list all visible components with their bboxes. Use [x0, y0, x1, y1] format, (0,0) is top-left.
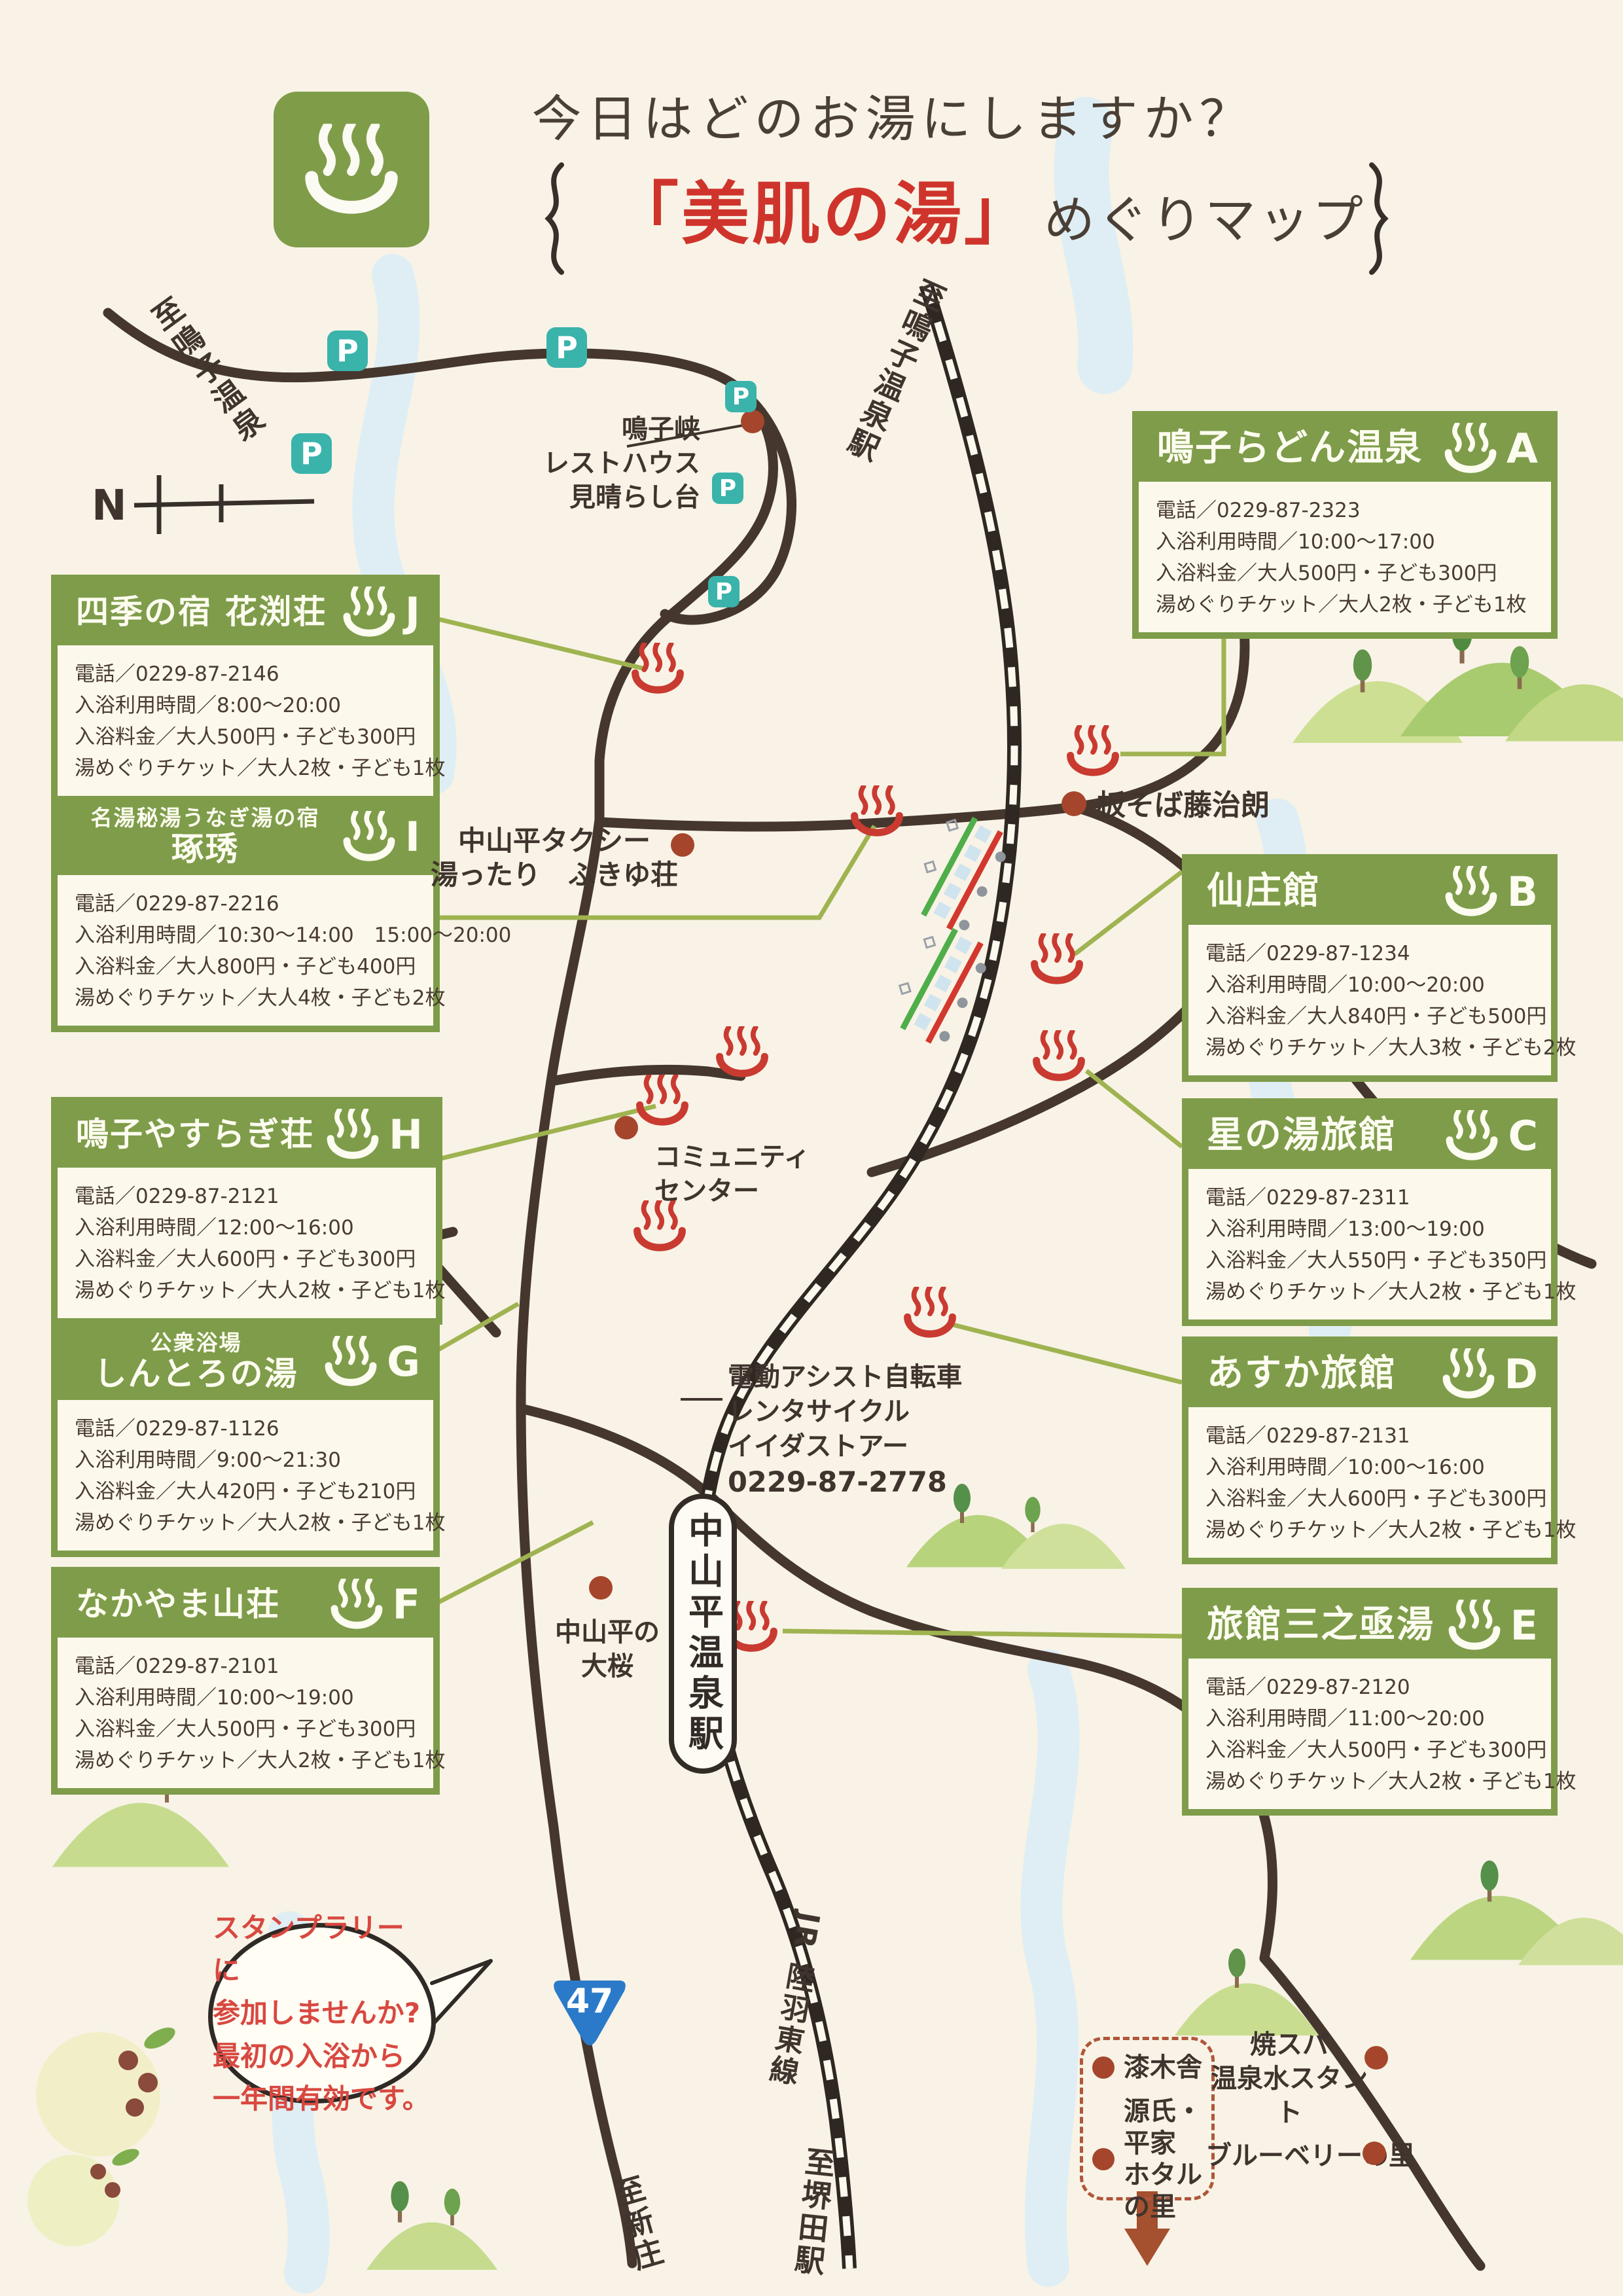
facility-header: 名湯秘湯うなぎ湯の宿 琢琇 I — [58, 795, 433, 875]
facility-phone: 電話／0229-87-2311 — [1205, 1182, 1547, 1213]
facility-name: 鳴子らどん温泉 — [1157, 428, 1423, 469]
facility-header: 公衆浴場 しんとろの湯 G — [58, 1319, 433, 1400]
onsen-map-page: 今日はどのお湯にしますか？ 「美肌の湯」 めぐりマップ 鳴子らどん温泉 A 電話… — [0, 0, 1623, 2296]
onsen-icon — [323, 1336, 379, 1387]
facility-info: 電話／0229-87-2146 入浴利用時間／8:00～20:00 入浴料金／大… — [58, 645, 433, 796]
facility-fee: 入浴料金／大人600円・子ども300円 — [1205, 1483, 1547, 1515]
facility-info: 電話／0229-87-2216 入浴利用時間／10:30～14:00 15:00… — [58, 875, 433, 1026]
yakispa-label: 焼スパ 温泉水スタント — [1211, 2028, 1368, 2130]
facility-name: 星の湯旅館 — [1207, 1115, 1397, 1157]
parking-letter: P — [715, 579, 732, 605]
parking-letter: P — [336, 333, 359, 368]
facility-phone: 電話／0229-87-2101 — [75, 1651, 429, 1682]
stamp-rally-text: スタンプラリーに 参加しませんか? 最初の入浴から 一年間有効です。 — [213, 1907, 431, 2119]
facility-phone: 電話／0229-87-2121 — [75, 1181, 432, 1212]
nakayamadaira-station-sign: 中山平温泉駅 — [669, 1494, 737, 1774]
facility-phone: 電話／0229-87-2323 — [1156, 495, 1547, 526]
rental-cycle-label: 電動アシスト自転車 レンタサイクル イイダストアー — [728, 1360, 962, 1463]
railway-base — [702, 285, 1014, 2269]
facility-hours: 入浴利用時間／8:00～20:00 — [75, 690, 429, 721]
facility-fee: 入浴料金／大人500円・子ども300円 — [1156, 558, 1547, 589]
poi-dot-icon — [1363, 2142, 1386, 2165]
leader-e — [783, 1631, 1182, 1636]
facility-info: 電話／0229-87-2311 入浴利用時間／13:00～19:00 入浴料金／… — [1188, 1169, 1551, 1319]
facility-header: 仙庄館 B — [1188, 854, 1551, 925]
subtitle-rest-text: めぐりマップ — [1044, 179, 1366, 253]
facility-box-i: 名湯秘湯うなぎ湯の宿 琢琇 I 電話／0229-87-2216 入浴利用時間／1… — [51, 795, 440, 1032]
flourish-left — [548, 165, 562, 272]
railway — [702, 285, 1014, 2269]
legend-label: 漆木舎 — [1124, 2052, 1202, 2084]
facility-header: あすか旅館 D — [1188, 1336, 1551, 1407]
route-47-badge: 47 — [551, 1975, 628, 2049]
facility-letter: C — [1508, 1112, 1538, 1160]
river-path — [1041, 1670, 1058, 2266]
facility-fee: 入浴料金／大人550円・子ども350円 — [1205, 1245, 1547, 1276]
stamp-rally-bubble: スタンプラリーに 参加しませんか? 最初の入浴から 一年間有効です。 — [208, 1923, 436, 2104]
poi-dot-icon — [1092, 2148, 1115, 2170]
facility-box-f: なかやま山荘 F 電話／0229-87-2101 入浴利用時間／10:00～19… — [51, 1567, 440, 1795]
parking-letter: P — [300, 436, 323, 471]
facility-name: なかやま山荘 — [76, 1586, 280, 1623]
parking-icon: P — [725, 381, 757, 412]
onsen-icon — [908, 1287, 953, 1334]
facility-box-g: 公衆浴場 しんとろの湯 G 電話／0229-87-1126 入浴利用時間／9:0… — [51, 1319, 440, 1557]
facility-ticket: 湯めぐりチケット／大人2枚・子ども1枚 — [75, 753, 429, 784]
facility-name: 旅館三之亟湯 — [1207, 1605, 1435, 1646]
onsen-icon — [1443, 866, 1499, 917]
page-subtitle: 「美肌の湯」 めぐりマップ — [576, 158, 1400, 257]
facility-phone: 電話／0229-87-2146 — [75, 658, 429, 690]
facility-ticket: 湯めぐりチケット／大人2枚・子ども1枚 — [1205, 1515, 1547, 1546]
north-label: N — [92, 479, 127, 533]
facility-letter: J — [405, 588, 420, 636]
parking-icon: P — [708, 576, 740, 607]
facility-fee: 入浴料金／大人840円・子ども500円 — [1205, 1001, 1547, 1032]
facility-info: 電話／0229-87-1234 入浴利用時間／10:00～20:00 入浴料金／… — [1188, 925, 1551, 1075]
onsen-icon — [341, 811, 397, 862]
legend-item-genji: 源氏・平家 ホタルの里 — [1092, 2096, 1205, 2223]
facility-name: しんとろの湯 — [94, 1355, 298, 1392]
onsen-icon — [640, 1075, 685, 1122]
parking-icon: P — [546, 327, 587, 368]
onsen-icon — [1440, 1348, 1497, 1399]
bubble-tail — [429, 1961, 491, 2026]
facility-fee: 入浴料金／大人600円・子ども300円 — [75, 1244, 432, 1275]
facility-ticket: 湯めぐりチケット／大人2枚・子ども1枚 — [75, 1745, 429, 1776]
leader-f — [438, 1522, 593, 1602]
facility-fee: 入浴料金／大人500円・子ども300円 — [1205, 1734, 1547, 1766]
facility-hours: 入浴利用時間／10:30～14:00 15:00～20:00 — [75, 920, 429, 951]
poi-dot — [615, 1116, 638, 1139]
facility-header: 旅館三之亟湯 E — [1188, 1588, 1551, 1659]
facility-letter: F — [393, 1581, 420, 1628]
legend-label: 源氏・平家 ホタルの里 — [1124, 2096, 1205, 2223]
subtitle-red-text: 「美肌の湯」 — [611, 158, 1035, 257]
facility-phone: 電話／0229-87-1234 — [1205, 938, 1547, 969]
facility-box-d: あすか旅館 D 電話／0229-87-2131 入浴利用時間／10:00～16:… — [1182, 1336, 1558, 1564]
facility-box-c: 星の湯旅館 C 電話／0229-87-2311 入浴利用時間／13:00～19:… — [1182, 1098, 1558, 1326]
parking-letter: P — [719, 475, 736, 502]
parking-letter: P — [732, 384, 749, 410]
taxi-label: 中山平タクシー — [458, 823, 651, 859]
facility-hours: 入浴利用時間／10:00～16:00 — [1205, 1452, 1547, 1483]
facility-ticket: 湯めぐりチケット／大人2枚・子ども1枚 — [75, 1507, 429, 1539]
facility-box-j: 四季の宿 花渕荘 J 電話／0229-87-2146 入浴利用時間／8:00～2… — [51, 575, 440, 802]
facility-letter: E — [1510, 1602, 1538, 1649]
legend-item-urushi: 漆木舎 — [1092, 2052, 1205, 2084]
onsen-icon — [341, 586, 397, 637]
facility-name-small: 公衆浴場 — [151, 1331, 242, 1355]
fukiyuso-label: 湯ったり ふきゆ荘 — [431, 857, 678, 893]
station-name: 中山平温泉駅 — [677, 1512, 729, 1755]
onsen-icon — [1037, 1030, 1082, 1077]
facility-letter: D — [1505, 1350, 1538, 1398]
facility-ticket: 湯めぐりチケット／大人2枚・子ども1枚 — [1205, 1766, 1547, 1797]
resthouse-label: 鳴子峡 レストハウス 見晴らし台 — [484, 412, 700, 514]
parking-icon: P — [327, 331, 368, 371]
facility-header: 鳴子やすらぎ荘 H — [58, 1097, 436, 1168]
facility-hours: 入浴利用時間／12:00～16:00 — [75, 1212, 432, 1244]
facility-hours: 入浴利用時間／9:00～21:30 — [75, 1444, 429, 1476]
facility-hours: 入浴利用時間／10:00～20:00 — [1205, 969, 1547, 1001]
parking-icon: P — [712, 473, 743, 504]
facility-fee: 入浴料金／大人500円・子ども300円 — [75, 721, 429, 753]
rental-cycle-phone: 0229-87-2778 — [728, 1465, 947, 1501]
facility-name: あすか旅館 — [1207, 1354, 1397, 1395]
facility-letter: G — [387, 1338, 420, 1386]
facility-ticket: 湯めぐりチケット／大人4枚・子ども2枚 — [75, 982, 429, 1014]
facility-name: 鳴子やすらぎ荘 — [76, 1116, 314, 1153]
community-center-label: コミュニティ センター — [654, 1140, 810, 1208]
sakura-label: 中山平の 大桜 — [548, 1615, 666, 1683]
facility-header: 四季の宿 花渕荘 J — [58, 575, 433, 645]
facility-phone: 電話／0229-87-2216 — [75, 888, 429, 920]
page-title: 今日はどのお湯にしますか？ — [484, 79, 1302, 151]
facility-ticket: 湯めぐりチケット／大人2枚・子ども1枚 — [1156, 589, 1547, 620]
facility-name: 仙庄館 — [1207, 871, 1321, 912]
facility-ticket: 湯めぐりチケット／大人2枚・子ども1枚 — [1205, 1276, 1547, 1308]
facility-box-e: 旅館三之亟湯 E 電話／0229-87-2120 入浴利用時間／11:00～20… — [1182, 1588, 1558, 1816]
onsen-icon — [325, 1109, 381, 1160]
facility-letter: I — [405, 813, 420, 861]
leader-d — [948, 1323, 1182, 1382]
facility-info: 電話／0229-87-2101 入浴利用時間／10:00～19:00 入浴料金／… — [58, 1638, 433, 1788]
facility-hours: 入浴利用時間／10:00～17:00 — [1156, 526, 1547, 558]
facility-hours: 入浴利用時間／11:00～20:00 — [1205, 1703, 1547, 1734]
poi-dot — [741, 410, 764, 433]
facility-letter: H — [389, 1111, 423, 1158]
onsen-icon — [1446, 1600, 1503, 1651]
facility-name: 四季の宿 花渕荘 — [76, 594, 327, 630]
facility-fee: 入浴料金／大人420円・子ども210円 — [75, 1476, 429, 1507]
facility-info: 電話／0229-87-2120 入浴利用時間／11:00～20:00 入浴料金／… — [1188, 1659, 1551, 1809]
onsen-icon — [1442, 423, 1499, 474]
parking-letter: P — [556, 330, 578, 365]
facility-fee: 入浴料金／大人500円・子ども300円 — [75, 1713, 429, 1745]
legend-dashed-box: 漆木舎 源氏・平家 ホタルの里 — [1080, 2037, 1215, 2200]
facility-box-b: 仙庄館 B 電話／0229-87-1234 入浴利用時間／10:00～20:00… — [1182, 854, 1558, 1082]
leader-j — [438, 619, 645, 669]
facility-fee: 入浴料金／大人800円・子ども400円 — [75, 951, 429, 982]
facility-info: 電話／0229-87-2131 入浴利用時間／10:00～16:00 入浴料金／… — [1188, 1407, 1551, 1558]
facility-info: 電話／0229-87-2121 入浴利用時間／12:00～16:00 入浴料金／… — [58, 1168, 436, 1318]
railway-ties — [702, 285, 1014, 2269]
facility-phone: 電話／0229-87-2120 — [1205, 1672, 1547, 1703]
facility-info: 電話／0229-87-1126 入浴利用時間／9:00～21:30 入浴料金／大… — [58, 1400, 433, 1551]
poi-dot-icon — [1364, 2046, 1388, 2070]
facility-hours: 入浴利用時間／10:00～19:00 — [75, 1682, 429, 1713]
poi-dot — [671, 833, 694, 857]
onsen-icon — [720, 1026, 765, 1073]
poi-dot — [589, 1576, 613, 1600]
facility-ticket: 湯めぐりチケット／大人2枚・子ども1枚 — [75, 1275, 432, 1306]
leader-b — [1075, 872, 1182, 954]
route-47-number: 47 — [551, 1982, 628, 2021]
facility-phone: 電話／0229-87-1126 — [75, 1413, 429, 1444]
facility-letter: A — [1507, 425, 1538, 473]
onsen-logo-icon — [302, 124, 401, 215]
facility-phone: 電話／0229-87-2131 — [1205, 1420, 1547, 1452]
facility-letter: B — [1507, 868, 1538, 916]
leader-c — [1086, 1071, 1182, 1147]
north-indicator — [134, 475, 314, 534]
facility-header: 星の湯旅館 C — [1188, 1098, 1551, 1169]
black-leaders — [627, 424, 750, 1399]
facility-ticket: 湯めぐりチケット／大人3枚・子ども2枚 — [1205, 1032, 1547, 1064]
parking-icon: P — [291, 433, 332, 474]
poi-dot — [1061, 791, 1086, 816]
facility-name: 琢琇 — [171, 831, 239, 867]
facility-box-a: 鳴子らどん温泉 A 電話／0229-87-2323 入浴利用時間／10:00～1… — [1132, 411, 1558, 639]
poi-dot-icon — [1092, 2056, 1115, 2079]
onsen-icon — [329, 1579, 385, 1630]
onsen-icon — [1071, 725, 1116, 772]
facility-header: 鳴子らどん温泉 A — [1139, 411, 1551, 482]
itasoba-label: 板そば藤治朗 — [1097, 787, 1270, 824]
facility-header: なかやま山荘 F — [58, 1567, 433, 1638]
facility-hours: 入浴利用時間／13:00～19:00 — [1205, 1213, 1547, 1245]
blueberry-illustration — [27, 2023, 179, 2246]
facility-box-h: 鳴子やすらぎ荘 H 電話／0229-87-2121 入浴利用時間／12:00～1… — [51, 1097, 442, 1325]
facility-name-small: 名湯秘湯うなぎ湯の宿 — [90, 806, 319, 831]
onsen-logo — [274, 92, 429, 247]
facility-info: 電話／0229-87-2323 入浴利用時間／10:00～17:00 入浴料金／… — [1139, 482, 1551, 632]
onsen-icon — [1444, 1110, 1500, 1161]
onsen-icon — [1035, 933, 1080, 980]
